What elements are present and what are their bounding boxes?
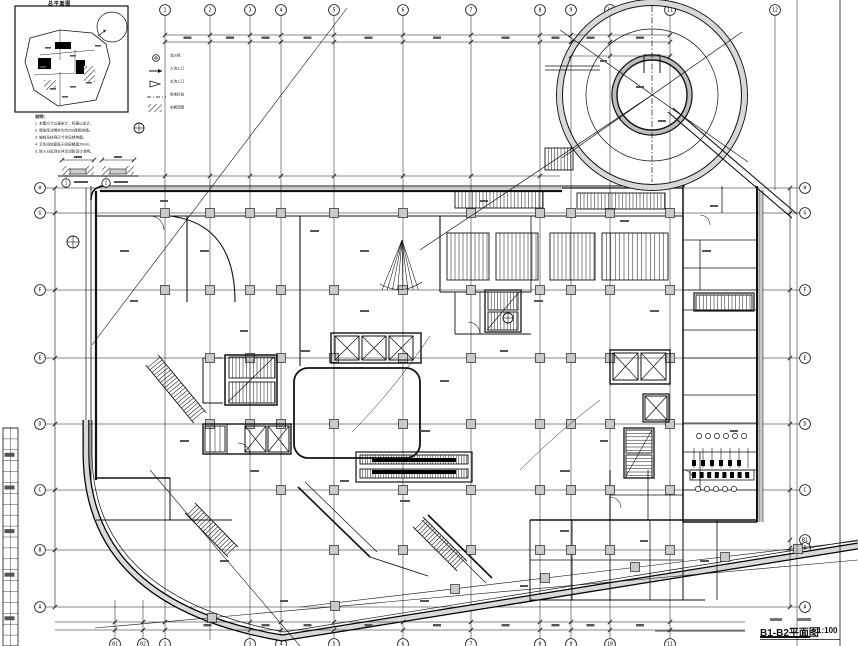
svg-text:A: A <box>39 605 42 611</box>
svg-text:1: 1 <box>164 642 167 646</box>
svg-text:G: G <box>804 211 807 217</box>
svg-text:A: A <box>804 605 807 611</box>
svg-text:11: 11 <box>667 642 673 646</box>
svg-text:9: 9 <box>570 642 573 646</box>
svg-text:9: 9 <box>570 8 573 14</box>
stamp-mark <box>770 618 782 621</box>
legend-label: 人流入口 <box>170 66 184 71</box>
key-plan-inset <box>15 6 166 112</box>
note-line: 5. 防火分区划分详见消防设计说明。 <box>35 150 92 154</box>
svg-text:B: B <box>39 548 42 554</box>
note-line: 3. 轴线及柱网尺寸详见结构图。 <box>35 136 92 140</box>
svg-text:4: 4 <box>280 8 283 14</box>
svg-text:F: F <box>39 288 42 294</box>
grid-layer: 1234567891011120102134567891011HGFEDCBAH… <box>35 5 811 646</box>
svg-text:H: H <box>804 186 807 192</box>
svg-text:10: 10 <box>607 642 613 646</box>
note-line: 1. 本图尺寸以毫米计，标高以米计。 <box>35 122 92 126</box>
notes-heading: 说明： <box>35 115 101 119</box>
svg-text:H: H <box>39 186 42 192</box>
svg-text:C: C <box>39 488 42 494</box>
legend-label: 消火栓 <box>170 53 181 58</box>
key-plan-title: 总平面图 <box>48 0 71 7</box>
svg-text:E: E <box>39 356 42 362</box>
svg-text:2: 2 <box>209 8 212 14</box>
svg-text:4: 4 <box>280 642 283 646</box>
svg-text:02: 02 <box>140 642 146 646</box>
note-line: 4. 卫生间地面低于同层楼面20mm。 <box>35 143 92 147</box>
drawing-sheet: { "sheet": { "title": "B1-B2平面图", "scale… <box>0 0 858 646</box>
note-line: 2. 墙体除注明外均为200厚砌块墙。 <box>35 129 92 133</box>
svg-text:F: F <box>804 288 807 294</box>
cores-layer <box>146 191 754 571</box>
general-notes: 说明： 1. 本图尺寸以毫米计，标高以米计。 2. 墙体除注明外均为200厚砌块… <box>35 115 145 157</box>
floor-plan-canvas: 1234567891011120102134567891011HGFEDCBAH… <box>0 0 858 646</box>
svg-text:6: 6 <box>402 8 405 14</box>
title-block: B1-B2平面图 1:100 <box>735 616 858 646</box>
svg-text:E: E <box>804 356 807 362</box>
sheet-scale: 1:100 <box>817 626 837 635</box>
svg-text:5: 5 <box>333 642 336 646</box>
legend-label: 本期范围 <box>170 105 184 110</box>
svg-text:3: 3 <box>249 642 252 646</box>
svg-text:3: 3 <box>249 8 252 14</box>
stamp-mark <box>797 618 811 621</box>
legend-label: 用地红线 <box>170 92 184 97</box>
svg-text:D: D <box>804 422 807 428</box>
svg-text:01: 01 <box>112 642 118 646</box>
svg-text:D: D <box>39 422 42 428</box>
svg-text:7: 7 <box>470 642 473 646</box>
legend-label: 车流入口 <box>170 79 184 84</box>
svg-text:11: 11 <box>667 8 673 14</box>
svg-text:G: G <box>39 211 42 217</box>
svg-text:1: 1 <box>164 8 167 14</box>
legend: 消火栓 人流入口 车流入口 用地红线 本期范围 <box>168 52 208 118</box>
svg-text:8: 8 <box>539 642 542 646</box>
svg-text:7: 7 <box>470 8 473 14</box>
svg-text:6: 6 <box>402 642 405 646</box>
svg-text:12: 12 <box>772 8 778 14</box>
svg-text:8: 8 <box>539 8 542 14</box>
sheet-title: B1-B2平面图 <box>760 624 819 639</box>
svg-text:C: C <box>804 488 807 494</box>
svg-text:5: 5 <box>333 8 336 14</box>
